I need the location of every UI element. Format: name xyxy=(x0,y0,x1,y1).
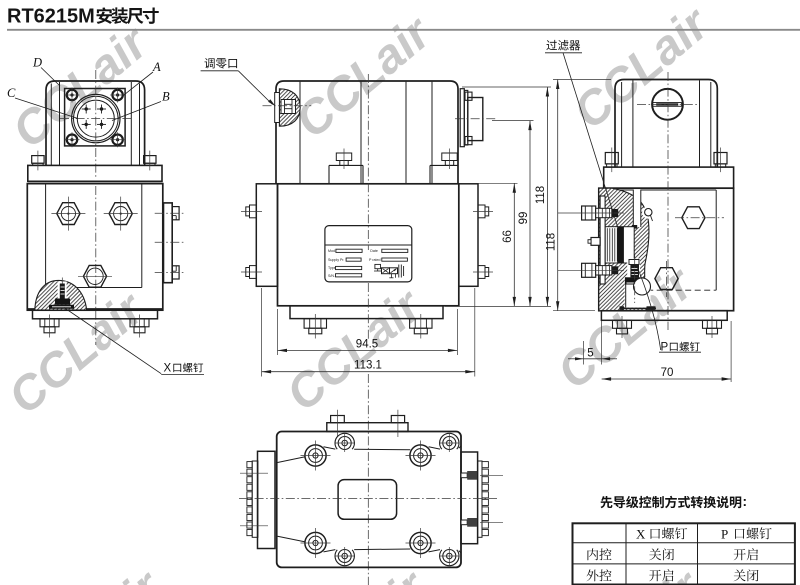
svg-text:C: C xyxy=(7,86,16,100)
svg-text:B: B xyxy=(162,90,170,104)
svg-text:P rated: P rated xyxy=(369,258,381,262)
svg-text:70: 70 xyxy=(661,367,674,379)
svg-text:99: 99 xyxy=(518,212,530,225)
svg-text:X: X xyxy=(164,363,172,375)
svg-text:Date: Date xyxy=(370,249,378,253)
svg-text::: : xyxy=(743,494,748,509)
svg-text:118: 118 xyxy=(546,233,558,251)
svg-text:P: P xyxy=(721,526,728,541)
svg-text:X: X xyxy=(636,526,646,541)
svg-text:66: 66 xyxy=(502,230,514,243)
svg-text:A: A xyxy=(152,60,161,74)
svg-text:5: 5 xyxy=(587,348,593,360)
svg-text:Supply Pr.: Supply Pr. xyxy=(328,258,344,262)
svg-text:S/N.: S/N. xyxy=(328,274,335,278)
svg-text:118: 118 xyxy=(535,186,547,204)
svg-text:Type: Type xyxy=(328,266,336,270)
svg-text:113.1: 113.1 xyxy=(354,360,382,372)
svg-text:Mod.: Mod. xyxy=(328,249,336,253)
svg-text:94.5: 94.5 xyxy=(356,338,378,350)
svg-text:D: D xyxy=(32,56,42,70)
svg-text:RT6215M: RT6215M xyxy=(7,6,95,28)
svg-text:P: P xyxy=(661,342,669,354)
